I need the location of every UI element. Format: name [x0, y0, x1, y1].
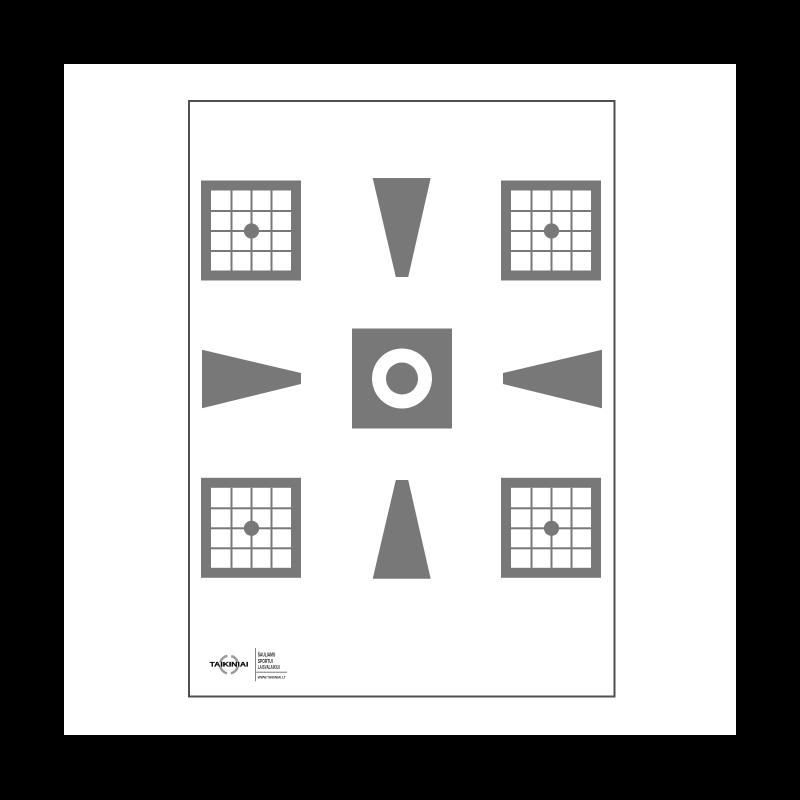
svg-text:TAIKINIAI: TAIKINIAI — [210, 662, 249, 669]
svg-text:WWW.TAIKINIAI.LT: WWW.TAIKINIAI.LT — [258, 674, 286, 679]
svg-text:LAISVALAIKIUI: LAISVALAIKIUI — [258, 665, 280, 671]
svg-text:ŠAULIAMS: ŠAULIAMS — [258, 651, 276, 659]
svg-text:SPORTUI: SPORTUI — [258, 659, 273, 665]
